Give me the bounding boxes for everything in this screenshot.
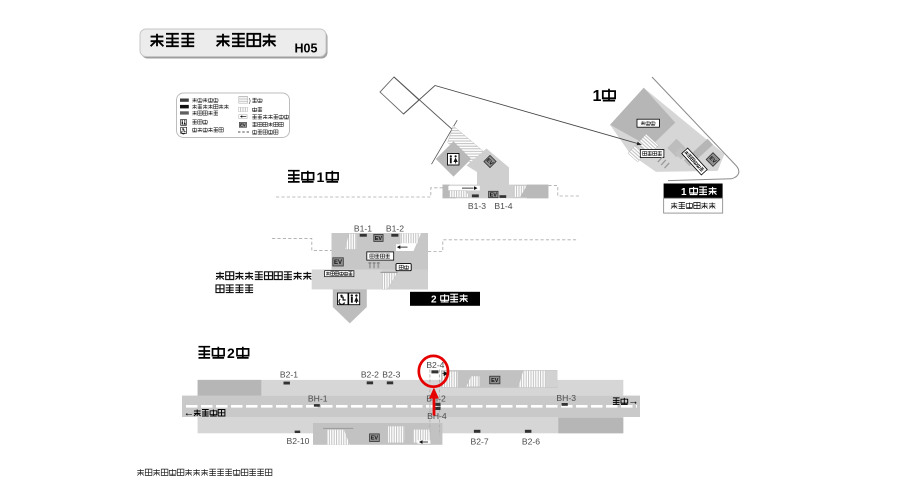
svg-text:1: 1	[317, 169, 325, 185]
svg-text:): )	[249, 98, 251, 105]
svg-text:BH-4: BH-4	[427, 411, 447, 421]
svg-text:B1-4: B1-4	[494, 201, 512, 211]
svg-text:1: 1	[593, 88, 602, 105]
svg-text:1: 1	[681, 187, 687, 198]
svg-text:2: 2	[227, 345, 235, 361]
svg-text:B2-10: B2-10	[287, 436, 310, 446]
svg-text:B2-1: B2-1	[280, 369, 298, 379]
svg-text:B1-2: B1-2	[386, 223, 404, 233]
svg-text:B1-1: B1-1	[354, 223, 372, 233]
svg-text:B1-3: B1-3	[468, 201, 486, 211]
svg-text:BH-3: BH-3	[556, 393, 576, 403]
svg-text:EV: EV	[240, 122, 246, 127]
svg-text:H05: H05	[295, 42, 318, 56]
svg-text:B2-7: B2-7	[471, 436, 489, 446]
svg-text:2: 2	[431, 295, 437, 306]
svg-text:B2-3: B2-3	[382, 369, 400, 379]
svg-text:EV: EV	[490, 192, 498, 198]
svg-text:EV: EV	[371, 436, 379, 442]
svg-text:EV: EV	[334, 260, 342, 266]
svg-text:EV: EV	[491, 378, 499, 384]
svg-text:←: ←	[184, 407, 195, 419]
svg-text:B2-6: B2-6	[522, 436, 540, 446]
svg-text:B2-4: B2-4	[426, 360, 444, 370]
svg-text:→: →	[628, 396, 639, 408]
svg-text:EV: EV	[375, 236, 383, 242]
svg-text:BH-1: BH-1	[308, 393, 328, 403]
svg-text:B2-2: B2-2	[361, 369, 379, 379]
